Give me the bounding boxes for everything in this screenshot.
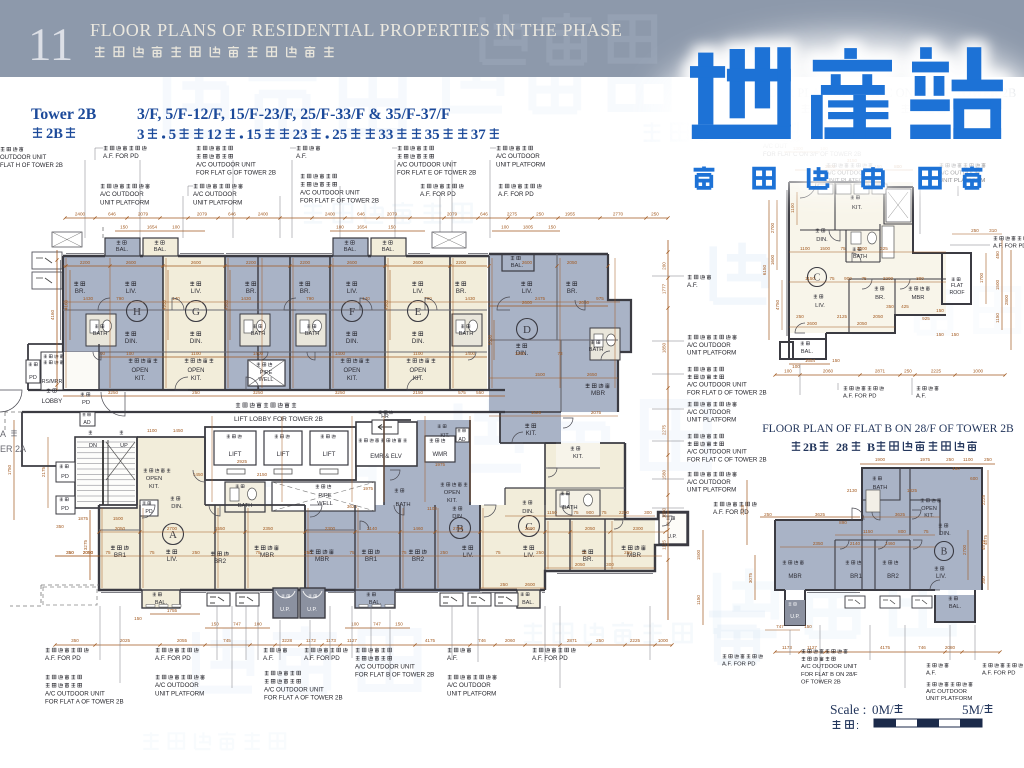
svg-text:H: H <box>133 306 141 318</box>
svg-text:2050: 2050 <box>873 314 884 319</box>
svg-text:250: 250 <box>764 512 772 517</box>
svg-text:2140: 2140 <box>850 541 861 546</box>
svg-text:BR1: BR1 <box>850 574 862 580</box>
svg-text:OPEN: OPEN <box>343 368 360 374</box>
svg-text:250: 250 <box>536 550 544 555</box>
svg-text:1460: 1460 <box>413 526 424 531</box>
svg-text::: : <box>856 720 859 732</box>
svg-text:DIN.: DIN. <box>816 237 828 243</box>
svg-text:OPEN: OPEN <box>409 368 426 374</box>
svg-text:2275: 2275 <box>507 212 518 217</box>
svg-text:350: 350 <box>886 304 894 309</box>
svg-text:A.F. FOR PD: A.F. FOR PD <box>722 662 756 668</box>
svg-text:2600: 2600 <box>191 260 202 265</box>
svg-text:2225: 2225 <box>981 494 986 505</box>
svg-text:OPEN: OPEN <box>444 490 460 496</box>
svg-text:75: 75 <box>829 276 835 281</box>
svg-text:1173: 1173 <box>782 645 792 650</box>
svg-text:250: 250 <box>500 582 508 587</box>
svg-text:1500: 1500 <box>696 549 701 560</box>
svg-text:100: 100 <box>501 225 509 230</box>
svg-text:A/C OUTDOOR: A/C OUTDOOR <box>926 689 967 695</box>
svg-text:BR2: BR2 <box>214 558 227 565</box>
svg-text:DIN.: DIN. <box>125 338 138 345</box>
svg-text:746: 746 <box>478 638 486 643</box>
svg-text:LIV.: LIV. <box>413 288 424 295</box>
svg-text:2700: 2700 <box>167 526 178 531</box>
svg-text:1450: 1450 <box>173 428 184 433</box>
svg-text:2150: 2150 <box>257 472 268 477</box>
svg-text:150: 150 <box>120 225 128 230</box>
svg-text:3/F, 5/F-12/F, 15/F-23/F, 25/F: 3/F, 5/F-12/F, 15/F-23/F, 25/F-33/F & 35… <box>137 106 451 123</box>
svg-text:BAL.: BAL. <box>801 349 814 355</box>
svg-text:3625: 3625 <box>347 504 358 509</box>
svg-text:KIT.: KIT. <box>573 454 583 460</box>
svg-text:5M/: 5M/ <box>962 702 984 717</box>
svg-text:A.F.: A.F. <box>687 282 698 289</box>
svg-text:UNIT PLATFORM: UNIT PLATFORM <box>687 350 736 357</box>
svg-text:DN: DN <box>89 443 97 449</box>
svg-text:2200: 2200 <box>857 246 868 251</box>
svg-text:2600: 2600 <box>807 321 818 326</box>
svg-text:FLAT: FLAT <box>951 283 964 289</box>
svg-text:LIV.: LIV. <box>167 556 178 563</box>
svg-text:75: 75 <box>401 550 407 555</box>
svg-text:A/C OUTDOOR UNIT: A/C OUTDOOR UNIT <box>801 664 857 670</box>
svg-text:BATH: BATH <box>589 347 604 353</box>
svg-text:150: 150 <box>804 624 812 629</box>
svg-text:A/C OUTDOOR UNIT: A/C OUTDOOR UNIT <box>397 161 457 168</box>
svg-text:425: 425 <box>901 304 909 309</box>
svg-text:1654: 1654 <box>147 225 158 230</box>
svg-text:300: 300 <box>644 510 652 515</box>
svg-text:3250: 3250 <box>108 390 119 395</box>
svg-text:250: 250 <box>946 457 954 462</box>
svg-text:BR.: BR. <box>567 288 578 295</box>
svg-text:2600: 2600 <box>525 526 536 531</box>
svg-text:1650: 1650 <box>662 507 667 518</box>
svg-text:1125: 1125 <box>662 540 667 550</box>
svg-text:PD: PD <box>82 400 90 406</box>
svg-text:2055: 2055 <box>177 638 188 643</box>
svg-text:2700: 2700 <box>770 222 775 233</box>
svg-text:2700: 2700 <box>453 526 464 531</box>
svg-text:3275: 3275 <box>83 539 88 550</box>
svg-text:250: 250 <box>192 550 200 555</box>
svg-text:ROOF: ROOF <box>950 290 965 296</box>
svg-text:A.F.: A.F. <box>296 153 307 160</box>
svg-text:150: 150 <box>211 622 219 627</box>
svg-text:BATH: BATH <box>251 331 266 337</box>
svg-text:U.P.: U.P. <box>280 607 290 613</box>
svg-text:3625: 3625 <box>895 512 906 517</box>
svg-text:1500: 1500 <box>113 516 124 521</box>
svg-text:746: 746 <box>918 645 926 650</box>
svg-text:BR2: BR2 <box>887 574 899 580</box>
svg-text:PIPE: PIPE <box>318 493 331 499</box>
svg-text:75: 75 <box>573 510 579 515</box>
svg-text:1900: 1900 <box>875 457 886 462</box>
svg-text:2079: 2079 <box>197 212 208 217</box>
svg-text:PD: PD <box>61 506 69 512</box>
svg-text:2350: 2350 <box>263 526 274 531</box>
svg-text:1100: 1100 <box>800 246 810 251</box>
svg-text:FLOOR PLAN OF FLAT B ON 28/F O: FLOOR PLAN OF FLAT B ON 28/F OF TOWER 2B <box>762 422 1014 435</box>
svg-text:LIV.: LIV. <box>524 552 535 559</box>
svg-text:2060: 2060 <box>823 369 834 374</box>
svg-text:2925: 2925 <box>237 459 248 464</box>
svg-text:PIPE: PIPE <box>260 370 273 376</box>
svg-text:2200: 2200 <box>80 260 91 265</box>
svg-text:11: 11 <box>28 19 73 71</box>
svg-text:15: 15 <box>246 127 261 143</box>
svg-text:LIV.: LIV. <box>191 288 202 295</box>
svg-text:4575: 4575 <box>981 539 986 550</box>
svg-text:LOBBY: LOBBY <box>42 398 63 405</box>
svg-text:2475: 2475 <box>535 296 546 301</box>
svg-text:2600: 2600 <box>522 260 533 265</box>
svg-text:BATH: BATH <box>459 331 474 337</box>
svg-text:6150: 6150 <box>762 264 767 275</box>
svg-text:1100: 1100 <box>413 351 423 356</box>
svg-text:1654: 1654 <box>805 358 816 363</box>
svg-text:1955: 1955 <box>565 212 576 217</box>
svg-text:250: 250 <box>192 390 200 395</box>
svg-text:KIT.: KIT. <box>447 498 457 504</box>
svg-text:FOR FLAT A OF TOWER 2B: FOR FLAT A OF TOWER 2B <box>264 695 343 702</box>
svg-text:890: 890 <box>839 520 847 525</box>
svg-text:150: 150 <box>832 358 840 363</box>
svg-text:DIN.: DIN. <box>939 531 951 537</box>
svg-text:A/C OUTDOOR UNIT: A/C OUTDOOR UNIT <box>300 189 360 196</box>
svg-text:A.F.: A.F. <box>263 655 274 662</box>
svg-text:2079: 2079 <box>138 212 149 217</box>
svg-text:2200: 2200 <box>883 276 894 281</box>
svg-text:A/C OUTDOOR: A/C OUTDOOR <box>447 682 491 689</box>
svg-text:2130: 2130 <box>847 488 858 493</box>
svg-text:25: 25 <box>332 127 347 143</box>
svg-text:1100: 1100 <box>147 428 157 433</box>
svg-text:250: 250 <box>796 314 804 319</box>
svg-text:2600: 2600 <box>413 260 424 265</box>
svg-text:D: D <box>523 324 531 336</box>
svg-text:1000: 1000 <box>973 369 984 374</box>
svg-text:790: 790 <box>306 296 314 301</box>
svg-text:FOR FLAT B OF TOWER 2B: FOR FLAT B OF TOWER 2B <box>355 672 434 679</box>
svg-text:LIFT: LIFT <box>229 451 242 458</box>
svg-text:1430: 1430 <box>83 296 94 301</box>
svg-text:75: 75 <box>255 550 261 555</box>
svg-text:600: 600 <box>970 476 978 481</box>
svg-text:LIV.: LIV. <box>126 288 137 295</box>
svg-text:75: 75 <box>495 550 501 555</box>
svg-text:2050: 2050 <box>567 260 578 265</box>
svg-text:DIN.: DIN. <box>346 338 359 345</box>
svg-text:2400: 2400 <box>325 212 336 217</box>
svg-text:A/C OUTDOOR: A/C OUTDOOR <box>193 191 237 198</box>
svg-text:2871: 2871 <box>875 369 886 374</box>
svg-text:575: 575 <box>458 390 466 395</box>
svg-text:ER 2A: ER 2A <box>0 444 26 454</box>
svg-text:Tower 2B: Tower 2B <box>31 106 97 123</box>
svg-text:2200: 2200 <box>246 260 257 265</box>
svg-text:LIV.: LIV. <box>463 552 474 559</box>
svg-text:UNIT PLATFORM: UNIT PLATFORM <box>447 690 496 697</box>
svg-text:A.F. FOR PD: A.F. FOR PD <box>155 655 191 662</box>
svg-text:DIN.: DIN. <box>171 504 183 510</box>
svg-text:900: 900 <box>586 510 594 515</box>
svg-text:A/C OUTDOOR: A/C OUTDOOR <box>155 682 199 689</box>
svg-text:MBR: MBR <box>788 574 802 580</box>
svg-text:747: 747 <box>373 622 381 627</box>
svg-text:900: 900 <box>844 276 852 281</box>
svg-text:BAL.: BAL. <box>154 247 167 253</box>
svg-text:1975: 1975 <box>435 462 446 467</box>
svg-text:OF TOWER 2B: OF TOWER 2B <box>801 679 841 685</box>
svg-text:310: 310 <box>989 228 997 233</box>
svg-text:100: 100 <box>336 225 344 230</box>
svg-text:A/C OUTDOOR: A/C OUTDOOR <box>687 342 731 349</box>
svg-text:OPEN: OPEN <box>146 476 162 482</box>
svg-text:800: 800 <box>898 529 906 534</box>
svg-text:5: 5 <box>169 127 177 143</box>
svg-text:33: 33 <box>378 127 393 143</box>
svg-text:2600: 2600 <box>126 260 137 265</box>
svg-text:UNIT PLATFORM: UNIT PLATFORM <box>687 417 736 424</box>
svg-text:BR.: BR. <box>875 295 885 301</box>
svg-text:2350: 2350 <box>813 541 824 546</box>
svg-text:200: 200 <box>662 262 667 270</box>
svg-text:925: 925 <box>922 316 930 321</box>
svg-text:1400: 1400 <box>335 351 346 356</box>
svg-text:BAL.: BAL. <box>382 247 395 253</box>
svg-text:747: 747 <box>233 622 241 627</box>
svg-text:1100: 1100 <box>963 457 973 462</box>
svg-text:KIT.: KIT. <box>149 484 159 490</box>
svg-text:75: 75 <box>840 246 846 251</box>
svg-text:UNIT PLATFORM: UNIT PLATFORM <box>496 161 545 168</box>
svg-text:A.F. FOR PD: A.F. FOR PD <box>103 153 139 160</box>
svg-text:2871: 2871 <box>567 638 578 643</box>
svg-text:75: 75 <box>149 550 155 555</box>
svg-text:1150: 1150 <box>805 276 815 281</box>
svg-text:1550: 1550 <box>215 526 226 531</box>
svg-text:A/C OUTDOOR UNIT: A/C OUTDOOR UNIT <box>45 690 105 697</box>
svg-text:FLAT H OF TOWER 2B: FLAT H OF TOWER 2B <box>0 163 63 169</box>
svg-text:A/C OUTDOOR: A/C OUTDOOR <box>100 191 144 198</box>
svg-text:2700: 2700 <box>962 544 967 555</box>
svg-text:EMR & ELV: EMR & ELV <box>370 454 402 460</box>
svg-text:646: 646 <box>228 212 236 217</box>
svg-text:FOR FLAT A OF TOWER 2B: FOR FLAT A OF TOWER 2B <box>45 699 124 706</box>
svg-text:RS/MRR: RS/MRR <box>42 379 63 385</box>
svg-text:0M/: 0M/ <box>872 702 894 717</box>
svg-text:1825: 1825 <box>907 488 918 493</box>
svg-text:75: 75 <box>601 510 607 515</box>
svg-text:2225: 2225 <box>630 638 641 643</box>
svg-text:2800: 2800 <box>1004 294 1009 305</box>
svg-text:2200: 2200 <box>456 260 467 265</box>
svg-text:250: 250 <box>971 228 979 233</box>
svg-text:2275: 2275 <box>662 424 667 435</box>
svg-text:250: 250 <box>984 457 992 462</box>
svg-text:LIV.: LIV. <box>522 288 533 295</box>
svg-text:350: 350 <box>66 550 74 555</box>
svg-text:100: 100 <box>351 622 359 627</box>
svg-text:646: 646 <box>357 212 365 217</box>
svg-text:2300: 2300 <box>325 526 336 531</box>
svg-text:250: 250 <box>904 369 912 374</box>
svg-text:23: 23 <box>293 127 308 143</box>
svg-text:BATH: BATH <box>93 331 108 337</box>
svg-text:1580: 1580 <box>662 469 667 480</box>
svg-text:DIN.: DIN. <box>190 338 203 345</box>
svg-text:FOR FLAT E OF TOWER 2B: FOR FLAT E OF TOWER 2B <box>397 170 476 177</box>
svg-text:250: 250 <box>624 550 632 555</box>
svg-text:2075: 2075 <box>591 410 602 415</box>
svg-text:BR.: BR. <box>246 288 257 295</box>
svg-text:646: 646 <box>480 212 488 217</box>
svg-text:1430: 1430 <box>465 296 476 301</box>
svg-text:MBR: MBR <box>591 390 605 397</box>
svg-text:975: 975 <box>596 296 604 301</box>
svg-text:2300: 2300 <box>633 526 644 531</box>
svg-text:1100: 1100 <box>790 203 795 213</box>
svg-text:A.F. FOR PD: A.F. FOR PD <box>532 655 568 662</box>
svg-text:250: 250 <box>440 550 448 555</box>
svg-text:1100: 1100 <box>427 506 437 511</box>
svg-text:550: 550 <box>476 390 484 395</box>
svg-text:1150: 1150 <box>547 510 557 515</box>
svg-text:UNIT PLATFORM: UNIT PLATFORM <box>100 199 149 206</box>
svg-text:350: 350 <box>56 524 64 529</box>
svg-text:BR1: BR1 <box>114 552 127 559</box>
svg-text:2050: 2050 <box>585 526 596 531</box>
svg-text:646: 646 <box>108 212 116 217</box>
svg-text:100: 100 <box>792 364 800 369</box>
svg-text:745: 745 <box>223 638 231 643</box>
svg-text:350: 350 <box>71 638 79 643</box>
svg-text:A/C OUTDOOR UNIT: A/C OUTDOOR UNIT <box>687 449 747 456</box>
svg-text:1500: 1500 <box>515 351 526 356</box>
svg-text:1500: 1500 <box>995 279 1000 290</box>
svg-text:100: 100 <box>126 351 134 356</box>
svg-text:FOR FLAT F OF TOWER 2B: FOR FLAT F OF TOWER 2B <box>300 198 379 205</box>
svg-text:OUTDOOR UNIT: OUTDOOR UNIT <box>0 155 47 161</box>
svg-text:A.F. FOR PD: A.F. FOR PD <box>498 191 534 198</box>
svg-text:2050: 2050 <box>579 300 590 305</box>
svg-text:300: 300 <box>916 276 924 281</box>
svg-text:1805: 1805 <box>523 225 534 230</box>
svg-text:150: 150 <box>548 225 556 230</box>
svg-text:1875: 1875 <box>78 516 89 521</box>
svg-text:WELL: WELL <box>317 501 334 507</box>
svg-text:UNIT PLATFORM: UNIT PLATFORM <box>155 690 204 697</box>
svg-text:A.F. FOR PD: A.F. FOR PD <box>982 671 1016 677</box>
svg-text:OPEN: OPEN <box>187 368 204 374</box>
svg-text:1172: 1172 <box>306 638 316 643</box>
svg-text:1430: 1430 <box>241 296 252 301</box>
svg-text:1500: 1500 <box>820 246 831 251</box>
svg-text:3250: 3250 <box>335 390 346 395</box>
svg-text:LIV.: LIV. <box>815 303 825 309</box>
svg-text:1460: 1460 <box>885 541 896 546</box>
svg-text:LIV.: LIV. <box>347 288 358 295</box>
svg-text:150: 150 <box>952 466 960 471</box>
svg-text:3: 3 <box>137 127 145 143</box>
svg-text:325: 325 <box>880 246 888 251</box>
svg-text:2079: 2079 <box>387 212 398 217</box>
svg-text:WELL: WELL <box>259 377 274 383</box>
svg-text:12: 12 <box>207 127 222 143</box>
svg-text:3250: 3250 <box>253 390 264 395</box>
svg-text:2400: 2400 <box>258 212 269 217</box>
svg-text:2060: 2060 <box>505 638 516 643</box>
svg-text:BATH: BATH <box>853 254 867 260</box>
svg-text:150: 150 <box>388 225 396 230</box>
svg-text:2600: 2600 <box>525 582 536 587</box>
svg-text:1000: 1000 <box>658 638 669 643</box>
svg-text:2050: 2050 <box>575 562 586 567</box>
svg-text:A.F. FOR PD: A.F. FOR PD <box>420 191 456 198</box>
svg-text:G: G <box>192 306 200 318</box>
svg-text:UNIT PLATFORM: UNIT PLATFORM <box>193 199 242 206</box>
svg-text:1500: 1500 <box>535 372 546 377</box>
svg-text:2B: 2B <box>46 126 63 142</box>
svg-text:2225: 2225 <box>931 369 942 374</box>
svg-text:2125: 2125 <box>837 314 848 319</box>
svg-text:BAL.: BAL. <box>949 604 962 610</box>
svg-text:250: 250 <box>536 212 544 217</box>
svg-text:U.P.: U.P. <box>667 534 676 540</box>
svg-text:2770: 2770 <box>613 212 624 217</box>
svg-text:450: 450 <box>995 251 1000 259</box>
svg-text:A.F. FOR PD: A.F. FOR PD <box>304 655 340 662</box>
svg-text:A/C OUTDOOR UNIT: A/C OUTDOOR UNIT <box>264 686 324 693</box>
svg-text:FOR FLAT B ON 28/F: FOR FLAT B ON 28/F <box>801 672 858 678</box>
svg-text:1975: 1975 <box>363 486 374 491</box>
svg-text:4750: 4750 <box>775 299 780 310</box>
svg-text:F: F <box>349 306 355 318</box>
svg-text:A.F.: A.F. <box>926 671 936 677</box>
svg-text:BAL.: BAL. <box>116 247 129 253</box>
svg-text:2650: 2650 <box>587 372 598 377</box>
svg-text:2025: 2025 <box>120 638 131 643</box>
svg-text:BR.: BR. <box>75 288 86 295</box>
svg-text:MBR: MBR <box>912 295 925 301</box>
svg-text:4175: 4175 <box>880 645 891 650</box>
svg-text:150: 150 <box>395 622 403 627</box>
svg-text:1700: 1700 <box>979 272 984 283</box>
svg-text:150: 150 <box>936 308 944 313</box>
svg-text:1750: 1750 <box>7 464 12 475</box>
svg-text:OPEN: OPEN <box>921 506 937 512</box>
svg-text:790: 790 <box>116 296 124 301</box>
svg-text:BR1: BR1 <box>365 556 378 563</box>
svg-text:747: 747 <box>776 624 784 629</box>
svg-text:BR.: BR. <box>300 288 311 295</box>
svg-text:1777: 1777 <box>662 283 667 294</box>
svg-text:B: B <box>941 547 948 558</box>
svg-text:PD: PD <box>61 474 69 480</box>
svg-text:A/C OUTDOOR: A/C OUTDOOR <box>496 153 540 160</box>
svg-text:300: 300 <box>981 576 986 584</box>
svg-text:A/C OUTDOOR UNIT: A/C OUTDOOR UNIT <box>687 382 747 389</box>
svg-text:KIT.: KIT. <box>526 430 537 437</box>
svg-text:1975: 1975 <box>920 457 931 462</box>
svg-text:AD: AD <box>458 437 465 443</box>
svg-text:A.F.: A.F. <box>916 394 926 400</box>
